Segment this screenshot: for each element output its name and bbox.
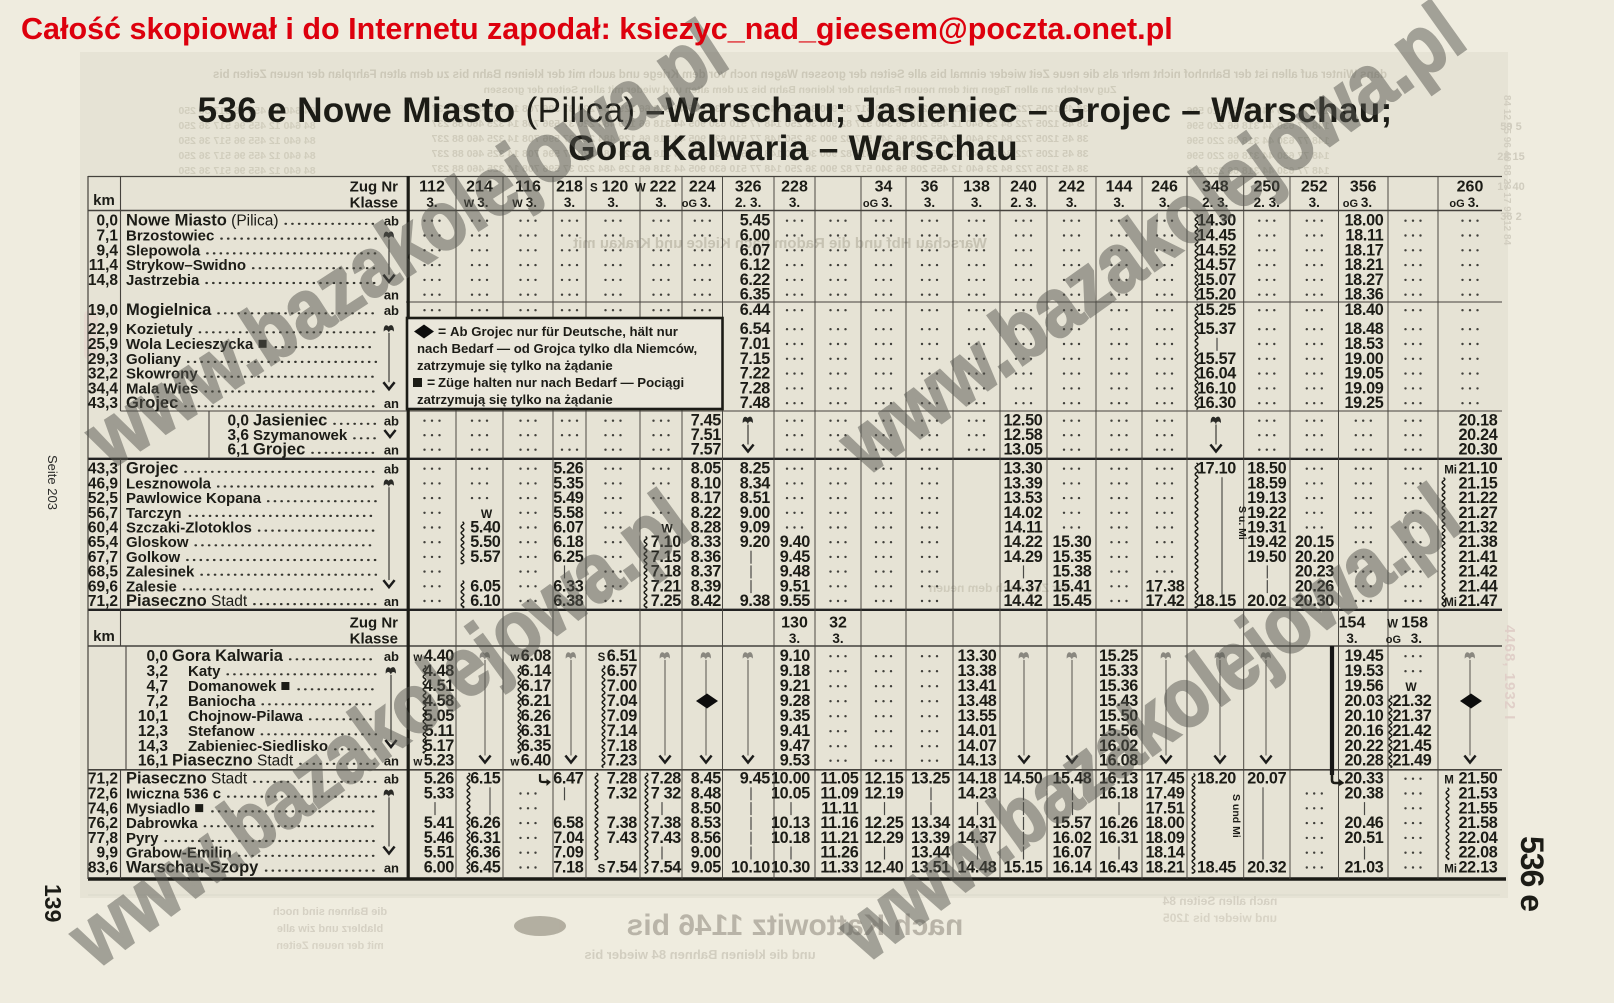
- svg-text:6.45: 6.45: [470, 859, 501, 877]
- svg-text:6,1: 6,1: [227, 442, 249, 459]
- svg-text:130: 130: [781, 615, 808, 632]
- svg-text:M: M: [1444, 775, 1454, 787]
- svg-text:3.: 3.: [655, 195, 666, 210]
- svg-text:84 640 12 455 96 517 36 250: 84 640 12 455 96 517 36 250: [178, 150, 315, 162]
- svg-text:9.05: 9.05: [691, 859, 722, 877]
- svg-text:14,8: 14,8: [88, 272, 119, 289]
- svg-text:5.33: 5.33: [424, 785, 455, 803]
- svg-text:6.15: 6.15: [470, 770, 501, 788]
- svg-text:260: 260: [1457, 179, 1484, 196]
- svg-text:20.38: 20.38: [1344, 785, 1383, 803]
- svg-text:blablerz und ziw alle: blablerz und ziw alle: [277, 923, 383, 935]
- svg-text:4468, 1932 I: 4468, 1932 I: [1501, 625, 1518, 720]
- svg-text:7.48: 7.48: [740, 394, 771, 412]
- svg-text:10.10: 10.10: [731, 859, 770, 877]
- svg-text:12.29: 12.29: [864, 829, 903, 847]
- svg-text:21.03: 21.03: [1344, 859, 1383, 877]
- svg-text:9.45: 9.45: [740, 770, 771, 788]
- svg-text:nach allen Seiten 84: nach allen Seiten 84: [1162, 894, 1277, 908]
- svg-text:11.33: 11.33: [820, 859, 858, 877]
- svg-text:Mi: Mi: [1444, 864, 1457, 876]
- svg-text:3.: 3.: [789, 631, 800, 646]
- svg-text:3.: 3.: [1411, 631, 1422, 646]
- svg-text:Warschau Hbf und die Radom nac: Warschau Hbf und die Radom nach Kielce u…: [573, 235, 987, 252]
- svg-text:84 640 12 455 96 517 36 250: 84 640 12 455 96 517 36 250: [178, 135, 315, 147]
- svg-text:6.40: 6.40: [521, 752, 552, 770]
- svg-text:oG: oG: [1343, 198, 1358, 210]
- svg-text:18.20: 18.20: [1197, 770, 1236, 788]
- svg-text:3.: 3.: [1066, 195, 1077, 210]
- svg-text:oG: oG: [863, 198, 878, 210]
- svg-text:19.25: 19.25: [1344, 394, 1383, 412]
- svg-text:15.37: 15.37: [1197, 320, 1236, 338]
- svg-text:W: W: [635, 183, 646, 195]
- svg-text:Zug Nr: Zug Nr: [350, 179, 398, 196]
- svg-text:die Bahnen sind noch: die Bahnen sind noch: [273, 906, 388, 918]
- svg-text:138: 138: [963, 179, 990, 196]
- svg-text:km: km: [93, 192, 115, 209]
- svg-text:3.: 3.: [924, 195, 935, 210]
- svg-text:15.25: 15.25: [1197, 301, 1236, 319]
- svg-text:158: 158: [1401, 615, 1428, 632]
- svg-text:7.54: 7.54: [651, 859, 682, 877]
- svg-text:9.55: 9.55: [780, 592, 811, 610]
- svg-text:240: 240: [1010, 179, 1037, 196]
- svg-text:7.18: 7.18: [553, 859, 584, 877]
- svg-text:Jastrzebia: Jastrzebia: [126, 272, 200, 289]
- svg-text:5.23: 5.23: [424, 752, 455, 770]
- svg-text:32: 32: [829, 615, 847, 632]
- svg-text:20.51: 20.51: [1344, 829, 1383, 847]
- svg-text:36: 36: [921, 179, 939, 196]
- svg-text:14.13: 14.13: [957, 752, 996, 770]
- svg-text:S: S: [598, 652, 606, 664]
- svg-text:Seite 203: Seite 203: [45, 455, 60, 510]
- svg-text:21.49: 21.49: [1392, 752, 1431, 770]
- svg-text:17.10: 17.10: [1197, 460, 1236, 478]
- svg-text:3.: 3.: [971, 195, 982, 210]
- svg-text:242: 242: [1058, 179, 1085, 196]
- svg-text:an: an: [384, 396, 399, 411]
- svg-text:Mi: Mi: [1444, 465, 1457, 477]
- svg-text:20.30: 20.30: [1458, 441, 1497, 459]
- svg-text:zatrzymują się tylko na żądani: zatrzymują się tylko na żądanie: [417, 392, 613, 407]
- svg-text:16,1: 16,1: [138, 753, 169, 770]
- svg-text:19,0: 19,0: [88, 302, 118, 319]
- svg-text:S: S: [590, 183, 598, 195]
- svg-text:W: W: [1405, 680, 1417, 694]
- svg-text:71,2: 71,2: [88, 593, 118, 610]
- svg-text:Mi: Mi: [1444, 597, 1457, 609]
- svg-text:nach Bedarf — od Grojca tylko: nach Bedarf — od Grojca tylko dla Niemcó…: [417, 341, 697, 356]
- svg-text:Mogielnica: Mogielnica: [126, 301, 212, 319]
- svg-text:an: an: [384, 594, 399, 609]
- svg-text:Klasse: Klasse: [350, 631, 398, 648]
- svg-text:15.45: 15.45: [1052, 592, 1091, 610]
- svg-text:222: 222: [650, 179, 677, 196]
- svg-text:7.54: 7.54: [607, 859, 638, 877]
- svg-text:84 12 55 96 40 88 23 17 96 12: 84 12 55 96 40 88 23 17 96 12 84: [1501, 95, 1512, 246]
- svg-text:20.32: 20.32: [1247, 859, 1286, 877]
- svg-text:ab: ab: [384, 414, 399, 429]
- svg-text:19.50: 19.50: [1247, 548, 1286, 566]
- svg-text:9.53: 9.53: [780, 752, 811, 770]
- svg-text:2. 3.: 2. 3.: [735, 195, 761, 210]
- svg-text:7.43: 7.43: [651, 829, 682, 847]
- svg-text:20.28: 20.28: [1344, 752, 1383, 770]
- svg-text:Zug Nr: Zug Nr: [350, 615, 398, 632]
- svg-text:3.: 3.: [789, 195, 800, 210]
- svg-text:=: =: [427, 374, 435, 390]
- svg-text:Züge halten nur nach Bedarf —: Züge halten nur nach Bedarf — Pociągi: [438, 375, 684, 390]
- svg-text:5.57: 5.57: [470, 548, 501, 566]
- svg-text:84 640 12 455 96 517 36 250: 84 640 12 455 96 517 36 250: [178, 165, 315, 177]
- svg-text:144: 144: [1106, 179, 1133, 196]
- svg-text:120: 120: [602, 179, 629, 196]
- svg-text:536 e Nowe Miasto (Pilica) –Wa: 536 e Nowe Miasto (Pilica) –Warschau; Ja…: [197, 91, 1392, 130]
- svg-text:3.: 3.: [1468, 195, 1479, 210]
- svg-text:dans Winter auf allen ist der: dans Winter auf allen ist der Bahnhof ni…: [213, 69, 1387, 81]
- svg-text:S: S: [598, 864, 606, 876]
- svg-text:2. 3.: 2. 3.: [1010, 195, 1036, 210]
- svg-text:S u. Mi: S u. Mi: [1236, 506, 1248, 540]
- svg-text:7 32: 7 32: [651, 785, 682, 803]
- svg-text:16.43: 16.43: [1099, 859, 1138, 877]
- svg-text:oG: oG: [1386, 634, 1401, 646]
- svg-text:S und Mi: S und Mi: [1230, 794, 1242, 838]
- svg-text:6.00: 6.00: [424, 859, 455, 877]
- svg-text:3.: 3.: [1361, 195, 1372, 210]
- svg-text:10.05: 10.05: [771, 785, 810, 803]
- svg-text:W: W: [1387, 619, 1398, 631]
- svg-text:9.20: 9.20: [740, 533, 771, 551]
- svg-text:34: 34: [875, 179, 893, 196]
- svg-text:3.: 3.: [607, 195, 618, 210]
- svg-text:mit der neuen Zeiten: mit der neuen Zeiten: [276, 940, 384, 952]
- svg-text:17.42: 17.42: [1145, 592, 1184, 610]
- svg-text:7.57: 7.57: [691, 441, 722, 459]
- svg-text:9.38: 9.38: [740, 592, 771, 610]
- svg-text:6.47: 6.47: [553, 770, 584, 788]
- svg-text:20.07: 20.07: [1247, 770, 1286, 788]
- svg-text:zatrzymuje się tylko na żądani: zatrzymuje się tylko na żądanie: [417, 358, 613, 373]
- svg-text:3.: 3.: [881, 195, 892, 210]
- svg-text:und die kleinen Bahnen 84 wied: und die kleinen Bahnen 84 wieder bis: [584, 947, 815, 962]
- svg-text:13.25: 13.25: [911, 770, 950, 788]
- svg-text:w: w: [509, 757, 519, 769]
- svg-text:ab: ab: [384, 462, 399, 477]
- svg-text:13.05: 13.05: [1003, 441, 1042, 459]
- svg-text:8.42: 8.42: [691, 592, 722, 610]
- svg-text:3.: 3.: [700, 195, 711, 210]
- svg-text:10.18: 10.18: [771, 829, 810, 847]
- svg-text:3.: 3.: [832, 631, 843, 646]
- svg-text:an: an: [384, 443, 399, 458]
- svg-text:an: an: [384, 861, 399, 876]
- svg-text:16.14: 16.14: [1052, 859, 1091, 877]
- svg-text:16.31: 16.31: [1099, 829, 1138, 847]
- svg-text:7.23: 7.23: [607, 752, 638, 770]
- svg-text:oG: oG: [682, 198, 697, 210]
- svg-text:18.40: 18.40: [1344, 301, 1383, 319]
- svg-text:=: =: [438, 323, 446, 339]
- svg-text:Ab Grojec nur für Deutsche, hä: Ab Grojec nur für Deutsche, hält nur: [450, 324, 678, 339]
- svg-text:3.: 3.: [564, 195, 575, 210]
- svg-text:536 e: 536 e: [1514, 836, 1550, 911]
- svg-text:326: 326: [735, 179, 762, 196]
- svg-text:oG: oG: [1449, 198, 1464, 210]
- svg-text:7.25: 7.25: [651, 592, 682, 610]
- svg-text:km: km: [93, 628, 115, 645]
- svg-text:228: 228: [781, 179, 808, 196]
- svg-text:224: 224: [689, 179, 716, 196]
- svg-text:22.13: 22.13: [1458, 859, 1497, 877]
- svg-text:6.44: 6.44: [740, 301, 771, 319]
- svg-text:10.30: 10.30: [771, 859, 810, 877]
- svg-text:Grojec: Grojec: [253, 441, 305, 459]
- svg-text:7.43: 7.43: [607, 829, 638, 847]
- svg-text:7.32: 7.32: [607, 785, 638, 803]
- svg-text:3.: 3.: [1309, 195, 1320, 210]
- svg-text:12.19: 12.19: [864, 785, 903, 803]
- svg-text:356: 356: [1350, 179, 1377, 196]
- svg-text:16.30: 16.30: [1197, 394, 1236, 412]
- svg-text:und wieder bis 1205: und wieder bis 1205: [1163, 911, 1277, 925]
- svg-text:14.29: 14.29: [1003, 548, 1042, 566]
- svg-text:18.45: 18.45: [1197, 859, 1236, 877]
- svg-text:Całość skopiował i do Internet: Całość skopiował i do Internetu zapodał:…: [21, 12, 1173, 46]
- svg-text:21.47: 21.47: [1458, 592, 1497, 610]
- svg-text:14.42: 14.42: [1003, 592, 1042, 610]
- svg-text:18.21: 18.21: [1145, 859, 1184, 877]
- svg-text:Piaseczno Stadt: Piaseczno Stadt: [126, 592, 248, 610]
